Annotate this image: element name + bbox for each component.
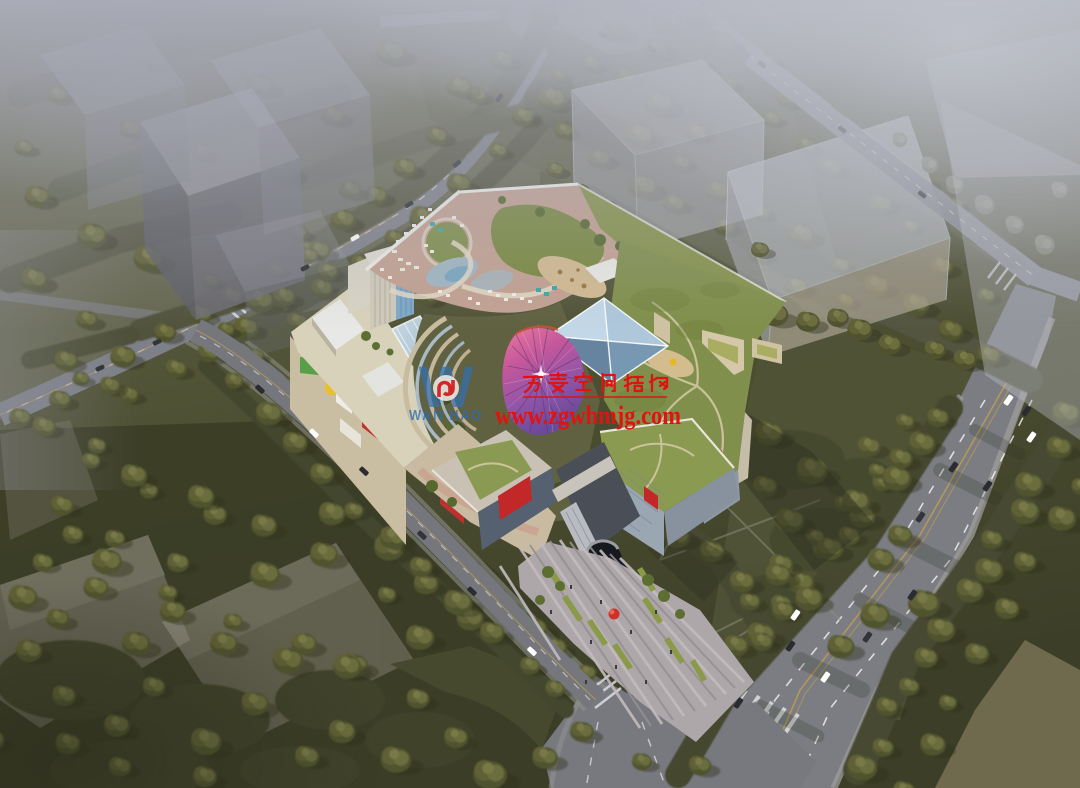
svg-text:WAN HAO: WAN HAO [409, 407, 483, 424]
svg-text:www.zgwhmjg.com: www.zgwhmjg.com [495, 401, 681, 430]
